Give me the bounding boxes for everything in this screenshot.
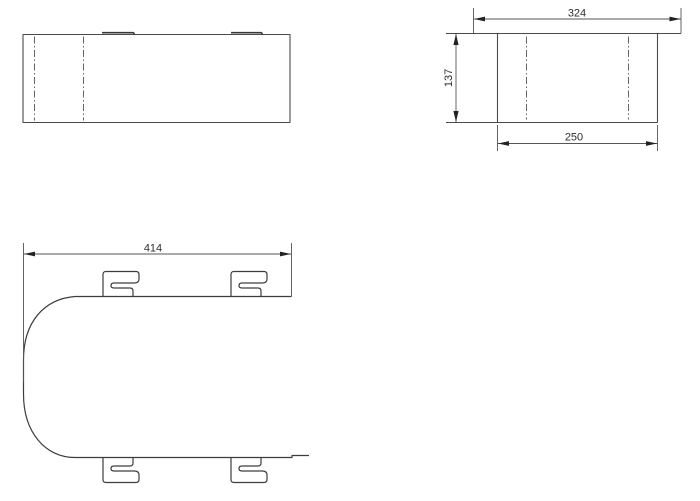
- spring-clip: [103, 272, 139, 297]
- front-view: 324 137 250: [443, 8, 681, 152]
- top-view: [23, 33, 290, 123]
- dimension-text: 324: [568, 8, 586, 20]
- arrowhead-right-icon: [280, 252, 291, 257]
- arrowhead-up-icon: [453, 34, 458, 45]
- spring-clip: [103, 458, 139, 483]
- arrowhead-down-icon: [453, 111, 458, 122]
- top-view-outline: [23, 35, 290, 123]
- arrowhead-right-icon: [646, 141, 657, 146]
- technical-drawing: 324 137 250: [0, 0, 700, 501]
- dimension-lines: [24, 243, 292, 382]
- spring-clip: [231, 458, 267, 483]
- shell-outline: [24, 297, 310, 458]
- dimension-flange-width: 324: [474, 8, 682, 34]
- arrowhead-right-icon: [670, 17, 681, 22]
- dimension-text: 250: [565, 132, 583, 144]
- dimension-text: 414: [144, 243, 162, 255]
- arrowhead-left-icon: [498, 141, 509, 146]
- arrowhead-left-icon: [24, 252, 35, 257]
- arrowhead-left-icon: [474, 17, 485, 22]
- dimension-body-width: 250: [498, 125, 658, 151]
- dimension-length: 414: [24, 243, 292, 383]
- side-view: 414: [24, 243, 310, 483]
- dimension-text: 137: [443, 69, 455, 87]
- spring-clip: [231, 272, 267, 297]
- drawing-sheet: 324 137 250: [0, 0, 700, 501]
- dimension-height: 137: [443, 34, 459, 123]
